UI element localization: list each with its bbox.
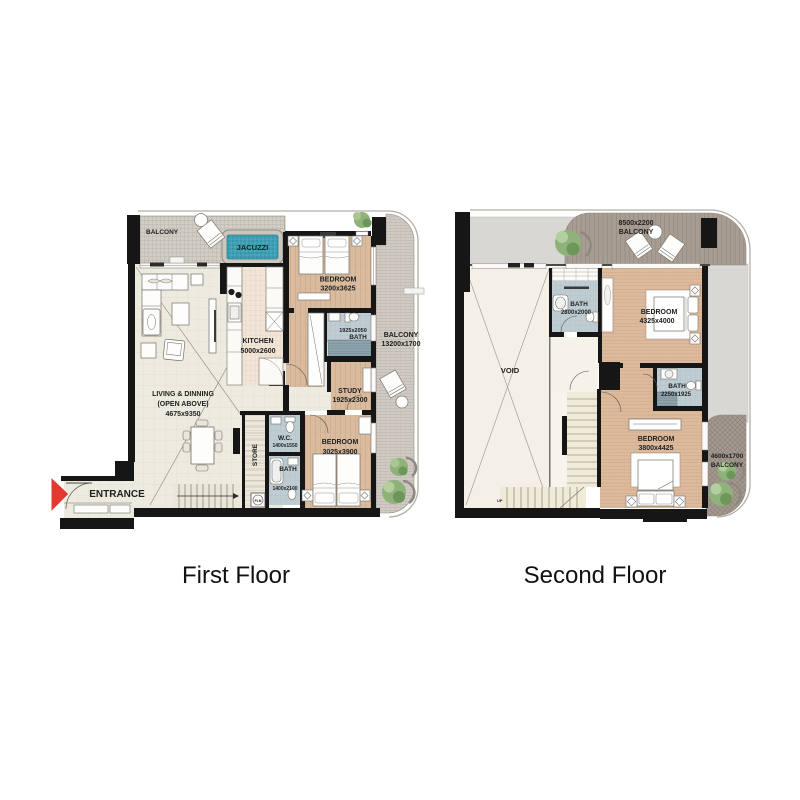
svg-text:BEDROOM: BEDROOM — [638, 436, 675, 443]
svg-text:JACUZZI: JACUZZI — [237, 243, 269, 252]
svg-text:BALCONY: BALCONY — [711, 462, 744, 469]
svg-text:1400x1550: 1400x1550 — [272, 443, 297, 449]
svg-text:PLM: PLM — [255, 499, 262, 503]
svg-text:2250x1925: 2250x1925 — [661, 392, 692, 398]
svg-text:BALCONY: BALCONY — [384, 332, 419, 339]
svg-text:1925x2300: 1925x2300 — [332, 397, 367, 404]
svg-text:4675x9350: 4675x9350 — [165, 411, 200, 418]
svg-text:ENTRANCE: ENTRANCE — [89, 489, 145, 500]
svg-text:VOID: VOID — [501, 366, 520, 375]
svg-text:BALCONY: BALCONY — [146, 229, 179, 236]
svg-text:KITCHEN: KITCHEN — [242, 338, 273, 345]
svg-text:3800x4425: 3800x4425 — [638, 445, 673, 452]
svg-text:W.C.: W.C. — [278, 435, 292, 442]
svg-text:8500x2200: 8500x2200 — [618, 220, 653, 227]
svg-text:2800x2000: 2800x2000 — [561, 310, 592, 316]
svg-text:BATH: BATH — [570, 301, 588, 308]
svg-text:BATH: BATH — [279, 466, 297, 473]
svg-text:STORE: STORE — [252, 443, 259, 466]
svg-text:1400x2100: 1400x2100 — [272, 486, 297, 492]
svg-text:5000x2600: 5000x2600 — [240, 348, 275, 355]
svg-text:BATH: BATH — [668, 383, 686, 390]
svg-text:BEDROOM: BEDROOM — [641, 309, 678, 316]
svg-text:(OPEN ABOVE): (OPEN ABOVE) — [157, 401, 208, 408]
svg-text:Second Floor: Second Floor — [524, 562, 667, 589]
svg-text:4600x1700: 4600x1700 — [711, 453, 744, 460]
svg-text:3025x3900: 3025x3900 — [322, 449, 357, 456]
svg-text:BATH: BATH — [349, 334, 367, 341]
svg-text:BEDROOM: BEDROOM — [322, 439, 359, 446]
svg-text:STUDY: STUDY — [338, 388, 362, 395]
svg-text:BALCONY: BALCONY — [619, 229, 654, 236]
svg-text:UP: UP — [497, 498, 503, 503]
svg-text:LIVING & DINNING: LIVING & DINNING — [152, 391, 214, 398]
svg-text:13200x1700: 13200x1700 — [382, 341, 421, 348]
svg-text:BEDROOM: BEDROOM — [320, 277, 357, 284]
svg-text:4325x4000: 4325x4000 — [639, 318, 674, 325]
svg-text:First Floor: First Floor — [182, 562, 290, 589]
svg-text:3200x3625: 3200x3625 — [320, 286, 355, 293]
